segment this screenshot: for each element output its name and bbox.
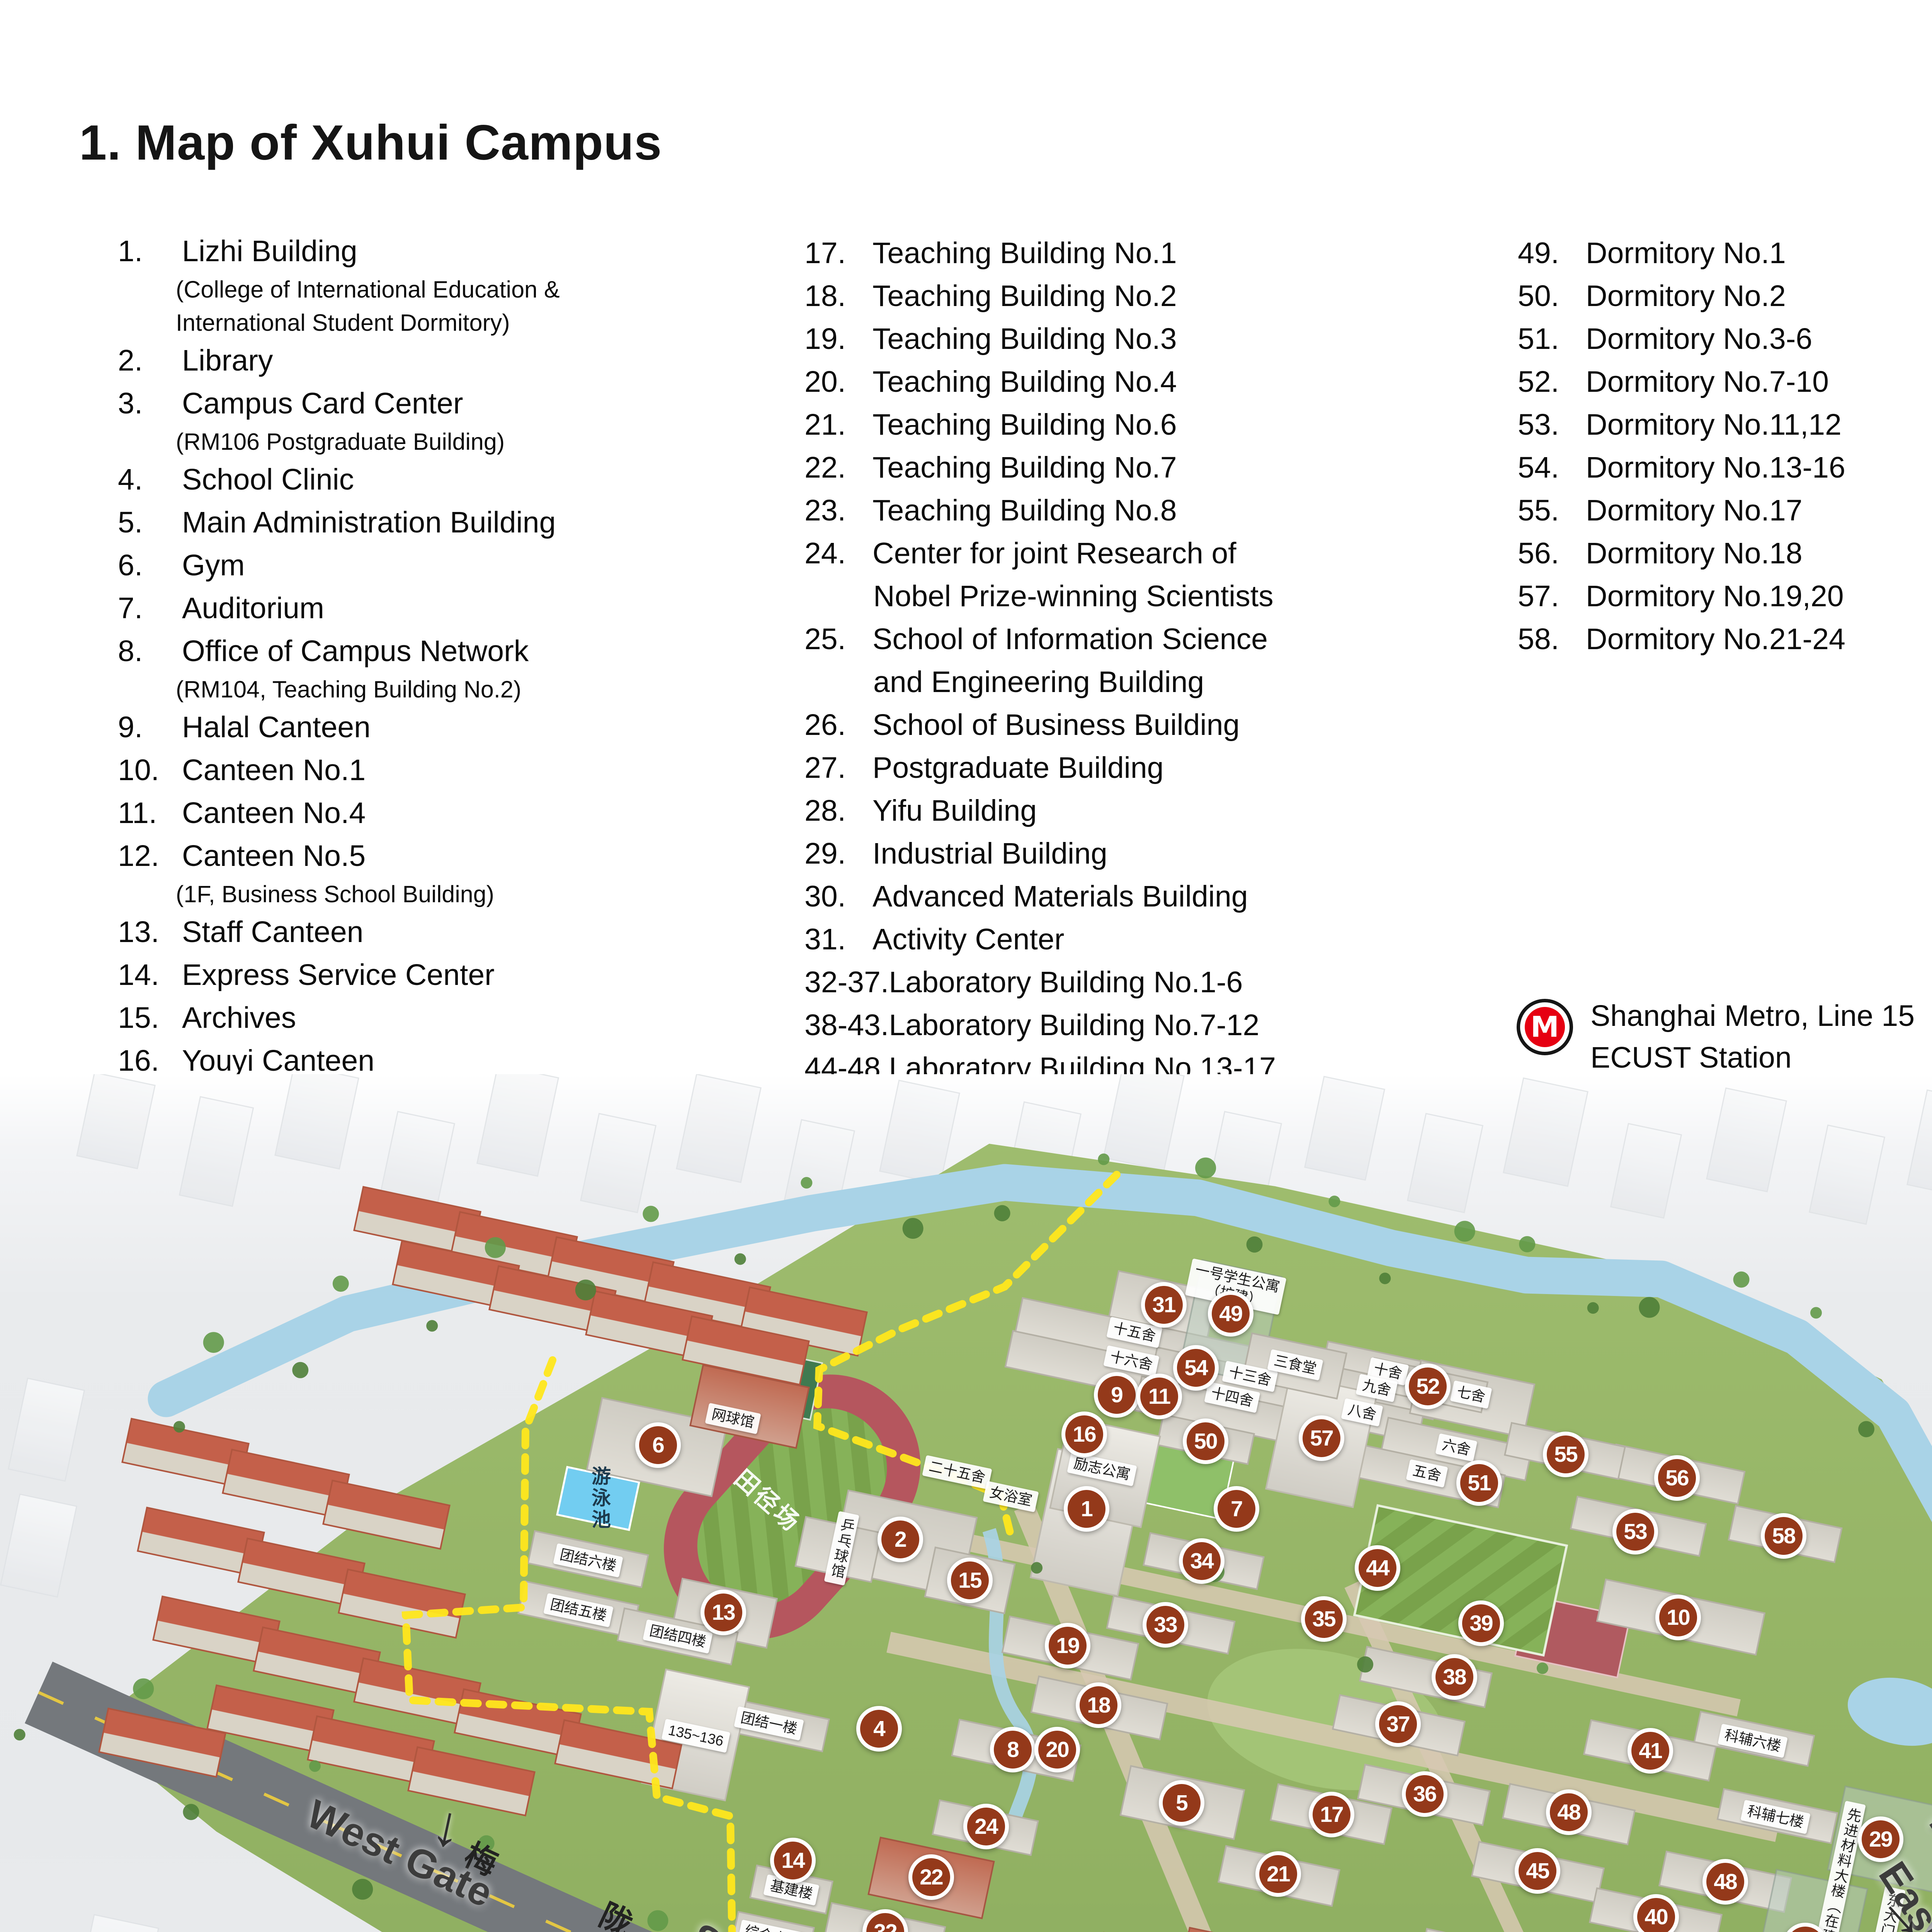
legend-item-note: (RM104, Teaching Building No.2) (118, 673, 560, 706)
map-marker-50: 50 (1183, 1418, 1228, 1464)
map-marker-21: 21 (1255, 1851, 1301, 1897)
map-marker-17: 17 (1309, 1792, 1354, 1837)
map-marker-8: 8 (990, 1727, 1036, 1772)
legend-item-note: (1F, Business School Building) (118, 878, 560, 911)
map-marker-13: 13 (701, 1590, 746, 1635)
map-marker-18: 18 (1076, 1682, 1121, 1728)
map-marker-35: 35 (1301, 1596, 1347, 1642)
legend-item: 38-43.Laboratory Building No.7-12 (804, 1004, 1276, 1047)
legend-item: 30.Advanced Materials Building (804, 875, 1276, 918)
legend-item: 26.School of Business Building (804, 704, 1276, 747)
legend-item: 3.Campus Card Center (118, 382, 560, 425)
legend-item: 1.Lizhi Building (118, 230, 560, 273)
map-marker-33: 33 (1143, 1602, 1188, 1648)
legend-item: 6.Gym (118, 544, 560, 587)
legend-item: 10.Canteen No.1 (118, 749, 560, 792)
legend-item: 7.Auditorium (118, 587, 560, 630)
legend-item: 18.Teaching Building No.2 (804, 275, 1276, 318)
map-marker-38: 38 (1432, 1654, 1477, 1700)
area-label: 游泳池 (586, 1466, 614, 1531)
map-marker-52: 52 (1405, 1364, 1451, 1409)
map-marker-37: 37 (1375, 1701, 1421, 1747)
metro-line-name: Shanghai Metro, Line 15 (1590, 995, 1915, 1037)
legend-item: 53.Dormitory No.11,12 (1518, 403, 1845, 446)
legend-item: 31.Activity Center (804, 918, 1276, 961)
legend-item: 29.Industrial Building (804, 832, 1276, 875)
map-marker-49: 49 (1208, 1291, 1253, 1337)
map-marker-51: 51 (1456, 1460, 1502, 1506)
legend-item: 55.Dormitory No.17 (1518, 489, 1845, 532)
legend-item: 8.Office of Campus Network (118, 630, 560, 673)
legend-item-continuation: Nobel Prize-winning Scientists (804, 575, 1276, 618)
map-marker-57: 57 (1299, 1415, 1344, 1461)
legend-item-note: (RM106 Postgraduate Building) (118, 425, 560, 458)
map-marker-20: 20 (1034, 1727, 1080, 1772)
legend-item: 27.Postgraduate Building (804, 747, 1276, 789)
map-marker-4: 4 (856, 1706, 902, 1752)
map-marker-31: 31 (1141, 1282, 1187, 1328)
legend-item: 15.Archives (118, 997, 560, 1039)
map-marker-58: 58 (1761, 1513, 1806, 1559)
legend-item: 2.Library (118, 339, 560, 382)
map-marker-15: 15 (947, 1558, 993, 1603)
map-marker-5: 5 (1159, 1780, 1204, 1826)
legend-item-note: International Student Dormitory) (118, 306, 560, 339)
metro-station-name: ECUST Station (1590, 1037, 1915, 1078)
map-marker-11: 11 (1136, 1374, 1182, 1419)
map-marker-1: 1 (1064, 1486, 1109, 1532)
map-marker-29: 29 (1858, 1816, 1903, 1862)
legend-item: 51.Dormitory No.3-6 (1518, 318, 1845, 361)
map-ground (0, 1074, 1932, 1932)
legend-item: 50.Dormitory No.2 (1518, 275, 1845, 318)
shanghai-metro-icon: M (1517, 999, 1573, 1055)
legend-item: 52.Dormitory No.7-10 (1518, 361, 1845, 403)
map-marker-24: 24 (963, 1804, 1009, 1849)
legend-item: 23.Teaching Building No.8 (804, 489, 1276, 532)
map-marker-48: 48 (1702, 1859, 1748, 1905)
map-marker-22: 22 (908, 1854, 954, 1900)
legend-item: 14.Express Service Center (118, 954, 560, 997)
legend-column-1: 1.Lizhi Building(College of Internationa… (118, 230, 560, 1082)
legend-item: 24.Center for joint Research of (804, 532, 1276, 575)
legend-item: 4.School Clinic (118, 458, 560, 501)
legend-item: 25.School of Information Science (804, 618, 1276, 661)
legend-column-3: 49.Dormitory No.150.Dormitory No.251.Dor… (1518, 232, 1845, 661)
map-marker-45: 45 (1515, 1848, 1560, 1894)
map-marker-14: 14 (770, 1838, 816, 1883)
legend-item: 11.Canteen No.4 (118, 792, 560, 835)
legend-item: 22.Teaching Building No.7 (804, 446, 1276, 489)
legend-item: 58.Dormitory No.21-24 (1518, 618, 1845, 661)
map-marker-54: 54 (1173, 1345, 1219, 1391)
map-marker-6: 6 (635, 1422, 681, 1468)
legend-item: 57.Dormitory No.19,20 (1518, 575, 1845, 618)
map-marker-19: 19 (1045, 1623, 1090, 1668)
map-marker-7: 7 (1214, 1486, 1259, 1532)
map-marker-10: 10 (1655, 1595, 1701, 1640)
map-marker-2: 2 (878, 1517, 923, 1562)
legend-item: 28.Yifu Building (804, 789, 1276, 832)
legend-item: 12.Canteen No.5 (118, 835, 560, 878)
legend-item: 20.Teaching Building No.4 (804, 361, 1276, 403)
legend-item: 21.Teaching Building No.6 (804, 403, 1276, 446)
map-marker-53: 53 (1612, 1509, 1658, 1554)
legend-column-2: 17.Teaching Building No.118.Teaching Bui… (804, 232, 1276, 1090)
map-marker-44: 44 (1355, 1545, 1400, 1591)
legend-item: 19.Teaching Building No.3 (804, 318, 1276, 361)
legend-item-note: (College of International Education & (118, 273, 560, 306)
map-marker-48: 48 (1546, 1789, 1592, 1835)
campus-map: 十五舍十六舍十三舍十四舍三食堂十舍九舍八舍七舍六舍五舍二十五舍女浴室一号学生公寓… (0, 1074, 1932, 1932)
legend-item: 56.Dormitory No.18 (1518, 532, 1845, 575)
map-marker-36: 36 (1402, 1771, 1447, 1817)
legend-item: 49.Dormitory No.1 (1518, 232, 1845, 275)
map-marker-55: 55 (1543, 1432, 1588, 1477)
legend-item: 54.Dormitory No.13-16 (1518, 446, 1845, 489)
legend-item: 32-37.Laboratory Building No.1-6 (804, 961, 1276, 1004)
map-marker-56: 56 (1654, 1455, 1700, 1501)
legend-item: 9.Halal Canteen (118, 706, 560, 749)
map-marker-16: 16 (1061, 1412, 1107, 1457)
map-marker-41: 41 (1628, 1728, 1673, 1774)
legend-item: 17.Teaching Building No.1 (804, 232, 1276, 275)
page-title: 1. Map of Xuhui Campus (79, 114, 662, 171)
legend-item: 13.Staff Canteen (118, 911, 560, 954)
map-marker-39: 39 (1458, 1600, 1504, 1646)
map-marker-34: 34 (1179, 1538, 1225, 1584)
legend-item-continuation: and Engineering Building (804, 661, 1276, 704)
map-marker-9: 9 (1094, 1372, 1139, 1418)
legend-item: 5.Main Administration Building (118, 501, 560, 544)
